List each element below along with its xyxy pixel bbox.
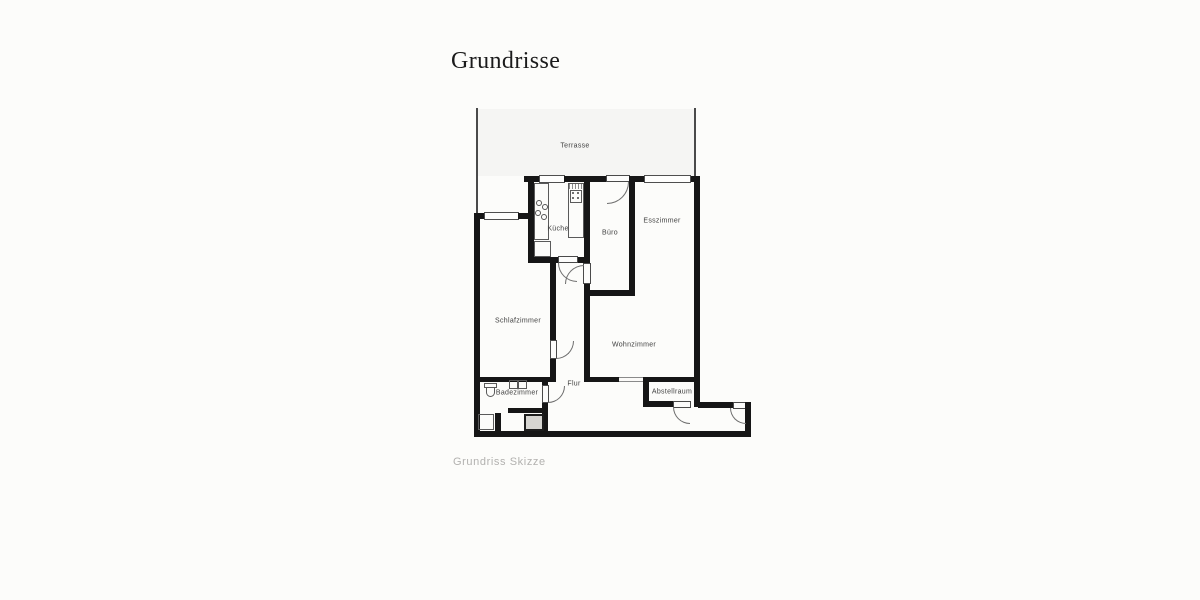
stove-burner-icon	[577, 197, 579, 199]
door-kitchen-frame	[558, 256, 578, 263]
door-entry-arc	[730, 408, 746, 424]
washing-machine-icon	[478, 414, 494, 430]
wall-storage-top	[643, 377, 698, 382]
room-label-wohnzimmer: Wohnzimmer	[612, 342, 656, 349]
window-dining	[644, 175, 691, 183]
wall-office-dining	[629, 182, 635, 296]
room-label-badezimmer: Badezimmer	[496, 390, 538, 397]
room-label-flur: Flur	[567, 381, 580, 388]
sink-icon	[536, 200, 542, 206]
wall-bath-inner	[508, 408, 548, 413]
door-storage-arc	[673, 407, 690, 424]
shower-icon	[524, 414, 544, 431]
washbasin-icon	[518, 380, 527, 389]
terrace-edge-left	[476, 108, 478, 216]
stove-burner-icon	[577, 192, 579, 194]
room-label-terrasse: Terrasse	[560, 143, 589, 150]
sink-icon	[541, 214, 547, 220]
wall-entry-top	[698, 402, 733, 408]
sink-icon	[542, 204, 548, 210]
room-label-kueche: Küche	[547, 226, 568, 233]
stove-burner-icon	[572, 192, 574, 194]
wall-right	[694, 176, 700, 407]
counter-hatch	[569, 184, 583, 189]
wall-office-bottom	[587, 290, 635, 296]
wall-hall-left	[550, 257, 556, 340]
toilet-icon	[486, 387, 495, 397]
door-office-frame	[583, 263, 591, 284]
door-terrace-frame	[606, 175, 630, 182]
sink-icon	[535, 210, 541, 216]
door-bath-arc	[548, 386, 565, 403]
opening-living-room	[619, 377, 643, 382]
door-bedroom-arc	[556, 341, 574, 359]
plan-caption: Grundriss Skizze	[453, 456, 546, 468]
washbasin-icon	[509, 380, 518, 389]
terrace-edge-right	[694, 108, 696, 178]
kitchen-counter	[534, 241, 551, 257]
wall-bottom	[474, 431, 751, 437]
door-terrace-arc	[607, 182, 629, 204]
wall-left	[474, 213, 480, 437]
scanned-document-page: Grundrisse	[0, 0, 1200, 600]
wall-hall-right	[584, 284, 590, 377]
stove-burner-icon	[572, 197, 574, 199]
wall-hall-right	[584, 182, 590, 263]
room-label-schlafzimmer: Schlafzimmer	[495, 318, 541, 325]
room-label-esszimmer: Esszimmer	[643, 218, 680, 225]
room-label-abstellraum: Abstellraum	[652, 389, 692, 396]
room-label-buero: Büro	[602, 230, 618, 237]
wall-bath-stub	[495, 413, 501, 437]
wall-living-bottom	[584, 377, 619, 382]
window-bedroom	[484, 212, 519, 220]
wall-storage-bottom	[643, 401, 673, 407]
window-kitchen	[539, 175, 565, 183]
floor-plan: Terrasse Küche Büro Esszimmer Schlafzimm…	[0, 0, 1200, 600]
